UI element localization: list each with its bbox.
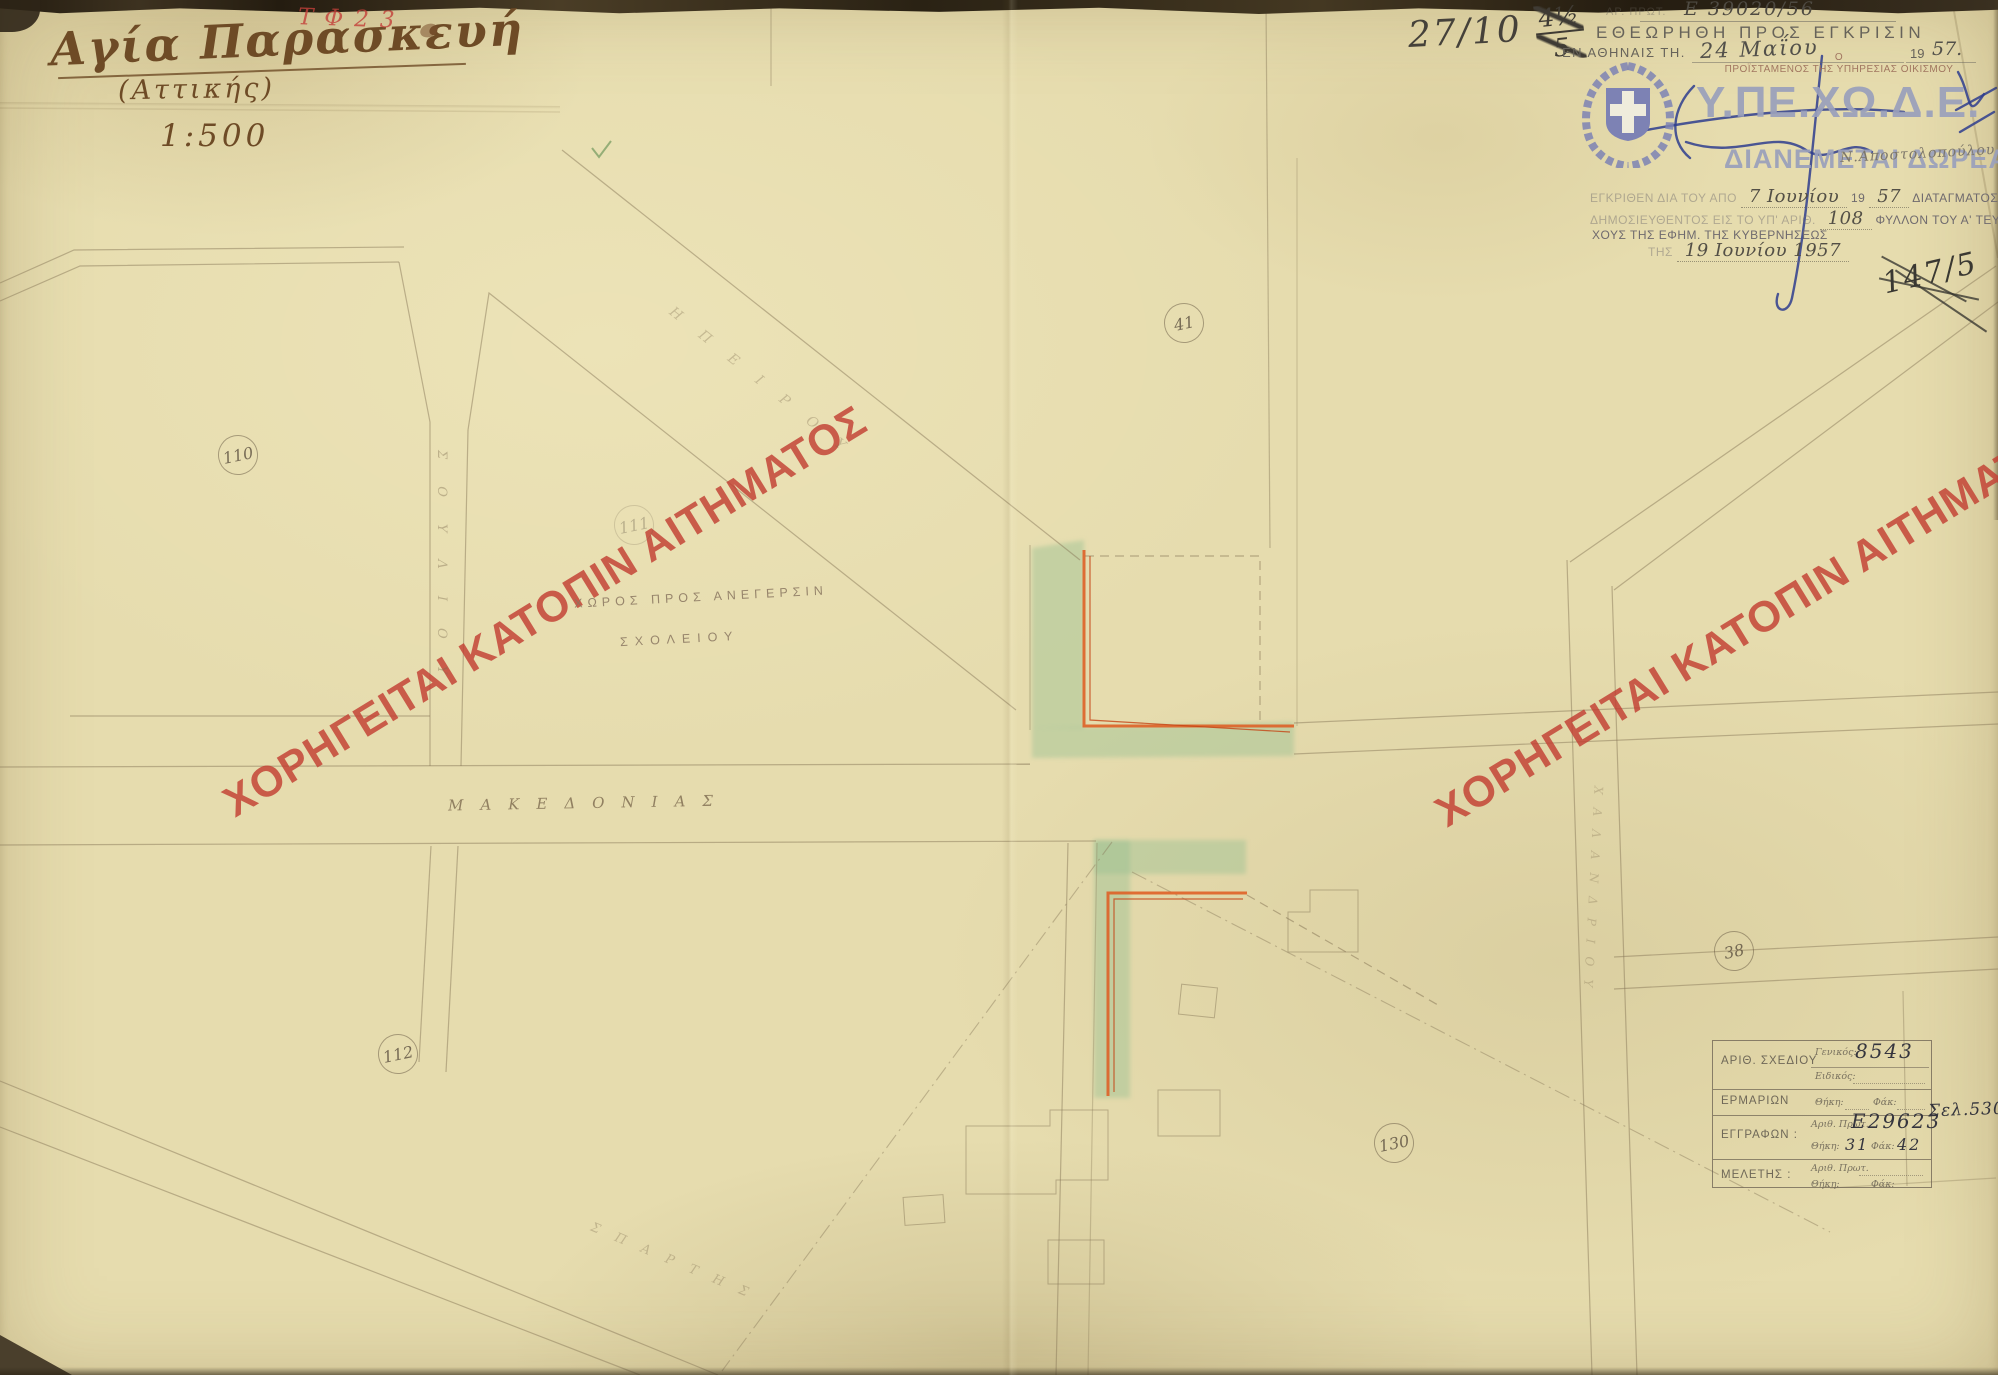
decree-l2-prefix: ΔΗΜΟΣΙΕΥΘΕΝΤΟΣ ΕΙΣ ΤΟ ΥΠ' ΑΡΙΘ. <box>1590 213 1816 227</box>
pencil-reference-number: 27/10 <box>1407 9 1523 56</box>
table-field-case: Θήκη: <box>1811 1179 1840 1190</box>
table-field-case: Θήκη: <box>1815 1097 1844 1108</box>
greek-coat-of-arms-emblem <box>1578 60 1678 168</box>
dotted-blank <box>1859 1174 1923 1176</box>
decree-line1: ΕΓΚΡΙΘΕΝ ΔΙΑ ΤΟΥ ΑΠΟ 7 Ιουνίου 19 57 ΔΙΑ… <box>1590 186 1998 207</box>
table-value-folder-number: 42 <box>1897 1135 1921 1154</box>
stamp-underline <box>1640 21 1896 22</box>
decree-year-print: 19 <box>1851 191 1865 205</box>
map-subtitle: (Αττικής) <box>118 73 276 107</box>
dash-dot-boundaries <box>722 842 1830 1371</box>
chief-title-text: ΠΡΟΪΣΤΑΜΕΝΟΣ ΤΗΣ ΥΠΗΡΕΣΙΑΣ ΟΙΚΙΣΜΟΥ <box>1725 64 1954 75</box>
table-field-folder: Φάκ: <box>1873 1097 1897 1108</box>
decree-date-handwritten: 7 Ιουνίου <box>1741 186 1847 208</box>
table-field-case: Θήκη: <box>1811 1141 1840 1152</box>
table-separator <box>1713 1159 1931 1160</box>
table-field-folder: Φάκ: <box>1871 1141 1895 1152</box>
bottom-edge-shadow <box>0 1367 1998 1375</box>
table-label-study: ΜΕΛΕΤΗΣ : <box>1721 1169 1791 1181</box>
green-expropriation-areas <box>1032 540 1294 1098</box>
street-name-west-vertical: ΣΟΥΛΙΟΥ <box>434 450 449 701</box>
table-label-drawing-no: ΑΡΙΘ. ΣΧΕΔΙΟΥ <box>1721 1055 1817 1067</box>
right-edge-shadow <box>1993 0 1998 520</box>
table-separator <box>1713 1089 1931 1090</box>
drawing-number-table: ΑΡΙΘ. ΣΧΕΔΙΟΥ Γενικός: 8543 Ειδικός: ΕΡΜ… <box>1712 1040 1932 1188</box>
decree-l2-suffix: ΦΥΛΛΟΝ ΤΟΥ Α' ΤΕΥ- <box>1875 213 1998 227</box>
approval-stamp-place: ΕΝ ΑΘΗΝΑΙΣ ΤΗ. <box>1562 45 1686 60</box>
decree-line4: ΤΗΣ 19 Ιουνίου 1957 <box>1648 240 1849 261</box>
gazette-number-handwritten: 108 <box>1820 208 1872 230</box>
table-field-folder: Φάκ: <box>1871 1179 1895 1190</box>
table-field-special: Ειδικός: <box>1815 1071 1856 1082</box>
table-value-general-number: 8543 <box>1855 1039 1914 1063</box>
scanned-town-plan-sheet: Αγία Παρασκευή (Αττικής) 1:500 ΤΦ23 27/1… <box>0 0 1998 1375</box>
decree-l4-prefix: ΤΗΣ <box>1648 245 1673 259</box>
table-subdivider <box>1811 1067 1929 1068</box>
table-value-case-number: 31 <box>1845 1135 1869 1154</box>
chief-of-service-title: Ο ΠΡΟΪΣΤΑΜΕΝΟΣ ΤΗΣ ΥΠΗΡΕΣΙΑΣ ΟΙΚΙΣΜΟΥ <box>1688 52 1990 75</box>
building-footprints <box>903 890 1358 1284</box>
vertical-fold-crease <box>1002 0 1018 1375</box>
chief-article: Ο <box>1835 52 1843 63</box>
protocol-number: Ε 39020/56 <box>1684 0 1815 20</box>
decree-l1-suffix: ΔΙΑΤΑΓΜΑΤΟΣ <box>1912 191 1998 205</box>
table-label-documents: ΕΓΓΡΑΦΩΝ : <box>1721 1129 1798 1141</box>
decree-l1-prefix: ΕΓΚΡΙΘΕΝ ΔΙΑ ΤΟΥ ΑΠΟ <box>1590 191 1737 205</box>
publication-date-handwritten: 19 Ιουνίου 1957 <box>1677 240 1849 262</box>
green-check-mark <box>592 141 611 157</box>
decree-line2: ΔΗΜΟΣΙΕΥΘΕΝΤΟΣ ΕΙΣ ΤΟ ΥΠ' ΑΡΙΘ. 108 ΦΥΛΛ… <box>1590 208 1998 229</box>
table-value-page-reference: Σελ.530 <box>1928 1099 1998 1122</box>
decree-year-handwritten: 57 <box>1869 186 1909 208</box>
ministry-acronym: Υ.ΠΕ.ΧΩ.Δ.Ε. <box>1696 78 1980 128</box>
protocol-label: ΑΡ. ΠΡΩΤ. <box>1606 6 1666 18</box>
red-pencil-note: ΤΦ23 <box>298 4 406 34</box>
dotted-blank <box>1853 1082 1925 1084</box>
table-label-cabinets: ΕΡΜΑΡΙΩΝ <box>1721 1095 1789 1107</box>
table-field-protocol-no: Αριθ. Πρωτ. <box>1811 1163 1869 1174</box>
map-scale: 1:500 <box>160 118 269 154</box>
table-field-general: Γενικός: <box>1815 1047 1857 1058</box>
dashed-plot-outline <box>1085 556 1438 1005</box>
